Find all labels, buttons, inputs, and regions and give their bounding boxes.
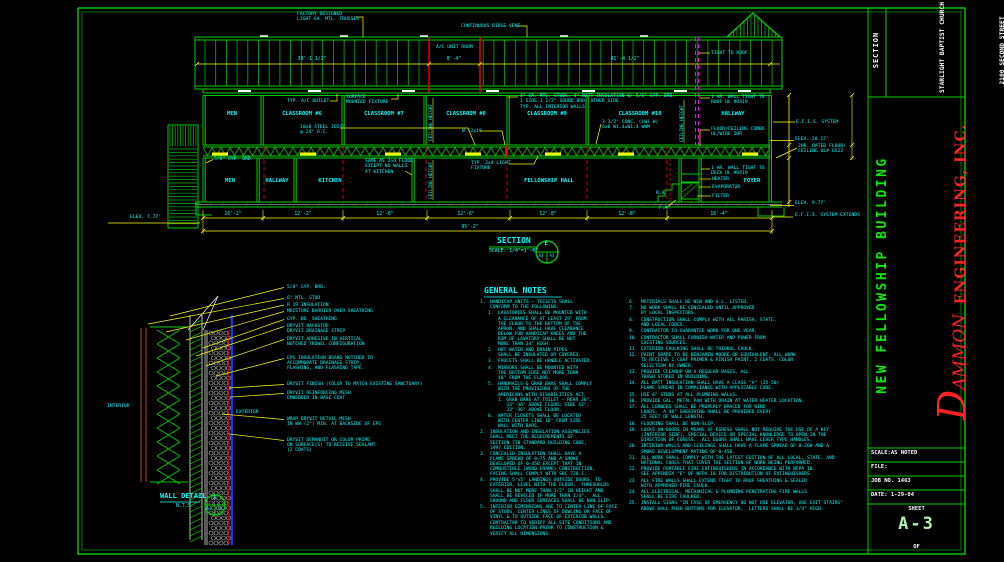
annotation-light-fix: TYP. 2x4 LIGHT FIXTURE bbox=[471, 161, 511, 172]
room-label: CLASSROOM #7 bbox=[364, 111, 404, 117]
dim-overall-label: 95'-2" bbox=[461, 225, 478, 230]
note-text: ALL CORNERS SHALL BE PROPERLY BRACED FOR… bbox=[641, 405, 771, 420]
annotation-ceiling-height: CEILING HEIGHT bbox=[430, 162, 435, 199]
titleblock-sheet-word: SHEET bbox=[868, 506, 965, 512]
titleblock-job: JOB NO. 1463 bbox=[871, 478, 963, 484]
titleblock-firm: DAMMON ENGINEERING, INC. SLIDELL, LOUISI… bbox=[899, 97, 947, 447]
wall-detail-note: DRYVIT BACKSTOP DRYVIT DRAINAGE STRIP bbox=[287, 324, 345, 334]
annotation-filter: FILTER bbox=[712, 194, 729, 199]
note-number: 4. bbox=[488, 366, 494, 371]
dim-label: 8'-4" bbox=[447, 57, 461, 62]
detail-marker-sheet: A3 bbox=[218, 507, 223, 511]
note-number: 5. bbox=[480, 505, 486, 510]
titleblock-of: OF bbox=[868, 544, 965, 550]
room-label: MEN bbox=[225, 178, 235, 184]
annotation-tight-roof: TIGHT TO ROOF bbox=[711, 51, 748, 56]
note-number: 25. bbox=[629, 501, 637, 506]
note-text: NO WORK SHALL BE CONCEALED UNTIL APPROVE… bbox=[641, 306, 754, 316]
note-text: FLOORING SHALL BE NON-SLIP. bbox=[641, 422, 716, 427]
note-number: 3. bbox=[480, 452, 486, 457]
wall-detail-note: MOISTURE BARRIER OVER SHEATHING bbox=[287, 309, 373, 314]
wall-detail-note: EPS INSULATION BOARD NOTCHED TO ACCOMMOD… bbox=[287, 356, 373, 371]
interior-label: INTERIOR bbox=[107, 404, 130, 409]
annotation-ra: R.A. bbox=[656, 191, 667, 196]
wall-detail-scale: N.T.S. bbox=[176, 504, 193, 509]
annotation-ceiling-height: CEILING HEIGHT bbox=[430, 104, 435, 141]
wall-detail-note: WRAP DRYVIT DETAIL MESH IN WW (2") MIN. … bbox=[287, 417, 381, 427]
dim-label: 12'-2" bbox=[294, 212, 311, 217]
note-number: 3. bbox=[488, 359, 494, 364]
room-label: FELLOWSHIP HALL bbox=[524, 178, 574, 184]
note-number: 10. bbox=[629, 336, 637, 341]
titleblock-file: FILE: bbox=[871, 464, 963, 470]
note-number: 7. bbox=[629, 306, 635, 311]
note-text: EXTERIOR CAULKING SHALL BE THIOKOL CAULK… bbox=[641, 347, 754, 352]
note-text: CONCEALED INSULATION SHALL HAVE A FLAME … bbox=[490, 452, 595, 478]
dim-label: 16'-2" bbox=[224, 212, 241, 217]
note-text: CONTRACTOR TO GUARANTEE WORK FOR ONE YEA… bbox=[641, 329, 757, 334]
note-number: 2. bbox=[480, 430, 486, 435]
annotation-evaporator: EVAPORATOR bbox=[712, 185, 740, 190]
annotation-same-as: SAME AS 2nd FLOOR EXCEPT NO WALLS AT KIT… bbox=[365, 159, 413, 175]
wall-detail-note: DRYVIT REINFORCING MESH EMBEDDED IN BASE… bbox=[287, 391, 351, 401]
annotation-surf-fix: SURFACE MOUNTED FIXTURE bbox=[346, 95, 388, 106]
note-text: CONSTRUCTION SHALL COMPLY WITH ALL PARIS… bbox=[641, 318, 777, 328]
wall-detail-note: DRYVIT ADHESIVE IN VERTICAL NOTCHED TROW… bbox=[287, 337, 364, 347]
dim-label: 41'-4 1/2" bbox=[611, 57, 640, 62]
firm-rest: AMMON bbox=[950, 314, 970, 390]
note-text: LAVATORIES SHALL BE MOUNTED WITH A CLEAR… bbox=[498, 311, 587, 347]
annotation-conc: 3 1/2" CONC. (LW) W/ 6x6 W1.4xW1.4 WWM bbox=[602, 120, 658, 131]
note-text: INTERIOR WALLS AND CEILINGS SHALL HAVE A… bbox=[641, 444, 829, 454]
room-label: CLASSROOM #6 bbox=[282, 111, 322, 117]
note-text: MIRRORS SHALL BE MOUNTED WITH THE BOTTOM… bbox=[498, 366, 578, 381]
note-number: 1. bbox=[488, 311, 494, 316]
note-number: 9. bbox=[629, 329, 635, 334]
note-number: 20. bbox=[629, 444, 637, 449]
note-number: 15. bbox=[629, 393, 637, 398]
note-number: 8. bbox=[629, 318, 635, 323]
titleblock-project: STARLIGHT BAPTIST CHURCH 2100 SECOND STR… bbox=[893, 8, 955, 93]
wall-detail-note: DRYVIT DEMANDIT OR COLOR PRIME ON SURFAC… bbox=[287, 438, 376, 453]
note-number: 23. bbox=[629, 479, 637, 484]
room-label: KITCHEN bbox=[318, 178, 341, 184]
titleblock-building-name: NEW FELLOWSHIP BUILDING bbox=[875, 105, 897, 445]
annotation-factory: FACTORY DESIGNED LIGHT GA. MTL. TRUSSES bbox=[297, 12, 359, 23]
project-street: 2100 SECOND STREET bbox=[993, 8, 1004, 93]
section-view-title: SECTION bbox=[497, 237, 531, 246]
room-label: CLASSROOM #10 bbox=[618, 111, 661, 117]
note-text: MATERIALS SHALL BE NEW AND U.L. LISTED. bbox=[641, 300, 749, 305]
annotation-wbeam: W 12x19 bbox=[462, 129, 482, 134]
titleblock-date: DATE: 1-29-04 bbox=[871, 492, 963, 498]
firm-initial: D bbox=[930, 390, 974, 420]
note-text: FAUCETS SHALL BE HANDLE ACTIVATED. bbox=[498, 359, 592, 364]
note-number: 14. bbox=[629, 381, 637, 386]
note-number: 13. bbox=[629, 370, 637, 375]
annotation-joist: 10x8 STEEL JOIST @ 24" O.C. bbox=[300, 125, 345, 136]
dim-label: 12'-8" bbox=[539, 212, 556, 217]
annotation-ceiling-height: CEILING HEIGHT bbox=[681, 105, 686, 142]
annotation-elev-right: ELEV. 9.77' bbox=[795, 201, 826, 206]
firm-suffix: ENGINEERING, INC. bbox=[953, 124, 969, 304]
note-text: ALL FIRE WALLS SHALL EXTEND TIGHT TO ROO… bbox=[641, 479, 807, 489]
room-label: HALLWAY bbox=[265, 178, 288, 184]
note-number: 24. bbox=[629, 490, 637, 495]
general-notes-title: GENERAL NOTES bbox=[484, 287, 547, 296]
note-text: INTERIOR DIMENSIONS ARE TO CENTER LINE O… bbox=[490, 505, 617, 520]
note-text: INSTALL SIGNS "IN CASE OF EMERGENCY DO N… bbox=[641, 501, 843, 511]
annotation-fc-combo: FLOOR/CEILING COMBO UL/WIRE 2HR bbox=[711, 127, 765, 138]
note-text: CONTRACTOR SHALL FURNISH WATER AND POWER… bbox=[641, 336, 765, 346]
note-number: 17. bbox=[629, 405, 637, 410]
annotation-heater: HEATER bbox=[712, 177, 729, 182]
note-number: 2. bbox=[488, 348, 494, 353]
titleblock-scale: SCALE:AS NOTED bbox=[871, 450, 963, 456]
project-name: STARLIGHT BAPTIST CHURCH bbox=[933, 8, 953, 93]
note-text: ALL ELECTRICAL, MECHANICAL & PLUMBING PE… bbox=[641, 490, 807, 500]
note-number: 11. bbox=[629, 347, 637, 352]
note-text: ALL BATT INSULATION SHALL HAVE A CLASS "… bbox=[641, 381, 779, 391]
titleblock-section-label: SECTION bbox=[872, 8, 886, 92]
note-text: PROVIDE PORTABLE FIRE EXTINGUISHERS IN A… bbox=[641, 467, 815, 477]
room-label: CLASSROOM #9 bbox=[527, 111, 567, 117]
room-label: FOYER bbox=[744, 178, 761, 184]
wall-detail-note: 6" MTL. STUD bbox=[287, 296, 320, 301]
annotation-fa: F.A. bbox=[659, 206, 670, 211]
section-marker-sheet: A3 bbox=[539, 254, 544, 258]
titleblock-sheet-number: A-3 bbox=[868, 514, 965, 534]
note-number: 6. bbox=[488, 414, 494, 419]
wall-detail-note: GYP. BD. SHEATHING bbox=[287, 317, 337, 322]
note-number: 5. bbox=[488, 382, 494, 387]
detail-marker-sheet: A3 bbox=[207, 507, 212, 511]
annotation-efis: E.F.I.S. SYSTEM bbox=[796, 120, 838, 125]
note-text: LOCKS ON DOORS IN MEANS OF EGRESS SHALL … bbox=[641, 428, 829, 443]
note-text: USE 6" STUDS AT ALL PLUMBING WALLS. bbox=[641, 393, 738, 398]
note-text: PAINT GRADE TO BE BENJAMIN MOORE OR EQUI… bbox=[641, 353, 796, 368]
dim-label: 12'-8" bbox=[618, 212, 635, 217]
section-view-scale: SCALE: 1/4"=1'-0" bbox=[489, 249, 538, 254]
note-number: 12. bbox=[629, 353, 637, 358]
note-text: PROVIDE 5'x5' LANDINGS OUTSIDE DOORS, TO… bbox=[490, 478, 612, 504]
note-number: 6. bbox=[629, 300, 635, 305]
section-marker-sheet: A3 bbox=[550, 254, 555, 258]
annotation-ridge: CONTINUOUS RIDGE VENT bbox=[461, 24, 520, 29]
note-text: HOT WATER AND DRAIN PIPES SHALL BE INSUL… bbox=[498, 348, 581, 358]
annotation-ac-room: A/C UNIT ROOM bbox=[436, 45, 473, 50]
dim-label: 12'-8" bbox=[376, 212, 393, 217]
detail-marker-number: 2 bbox=[213, 495, 217, 502]
annotation-studs-note: 4" GA. MTL. STUDS, 4" BATT INSULATION W/… bbox=[520, 94, 675, 110]
firm-name-line: DAMMON ENGINEERING, INC. bbox=[937, 97, 970, 447]
annotation-hr-wall-deck: 1 HR. WALL TIGHT TO DECK UL #U419 bbox=[711, 166, 765, 177]
annotation-efis-ext: E.F.I.S. SYSTEM EXTENDS bbox=[795, 213, 860, 218]
room-label: MEN bbox=[227, 111, 237, 117]
exterior-label: EXTERIOR bbox=[236, 410, 259, 415]
annotation-hr-wall-roof: 1 HR. WALL TIGHT TO ROOF UL #U419 bbox=[711, 95, 765, 106]
wall-detail-title: WALL DETAIL bbox=[160, 493, 206, 501]
section-marker-letter: E bbox=[545, 241, 549, 248]
note-text: WATER CLOSETS SHALL BE LOCATED WITH CENT… bbox=[498, 414, 581, 429]
note-number: 18. bbox=[629, 422, 637, 427]
note-text: ALL WORK SHALL COMPLY WITH THE LATEST ED… bbox=[641, 456, 835, 466]
annotation-ac-outlet: TYP. A/C OUTLET bbox=[287, 99, 329, 104]
note-number: 1. bbox=[480, 300, 486, 305]
annotation-rated-fc: 2HR. RATED FLOOR/ CEILING UL# G512 bbox=[798, 144, 846, 155]
note-number: 22. bbox=[629, 467, 637, 472]
note-text: HANDRAILS & GRAB BARS SHALL COMPLY WITH … bbox=[498, 382, 592, 413]
note-text: PROVIDE CLEANUP ON A REGULAR BASIS. ALL … bbox=[641, 370, 749, 380]
room-label: CLASSROOM #8 bbox=[446, 111, 486, 117]
wall-detail-note: 5/8" GYP. BRD. bbox=[287, 285, 326, 290]
note-number: 19. bbox=[629, 428, 637, 433]
note-number: 4. bbox=[480, 478, 486, 483]
dim-label: 12'-6" bbox=[457, 212, 474, 217]
dim-label: 30'-1 1/2" bbox=[298, 57, 327, 62]
annotation-elev-mid: ELEV. 20.17' bbox=[795, 137, 829, 142]
note-text: PROVIDE GAL. METAL PAN WITH DRAIN AT WAT… bbox=[641, 399, 804, 404]
cad-drawing-sheet: SECTION STARLIGHT BAPTIST CHURCH 2100 SE… bbox=[0, 0, 1004, 562]
note-number: 16. bbox=[629, 399, 637, 404]
dim-label: 16'-4" bbox=[710, 212, 727, 217]
note-text: HANDICAP UNITS — TOILETS SHALL CONFORM T… bbox=[490, 300, 573, 310]
room-label: HALLWAY bbox=[721, 111, 744, 117]
note-number: 21. bbox=[629, 456, 637, 461]
wall-detail-note: DRYVIT FINISH (COLOR TO MATCH EXISTING S… bbox=[287, 382, 423, 387]
annotation-gyp-1f: 5/8" GYP. BRD. bbox=[214, 157, 254, 162]
note-text: INSULATION AND INSULATION ASSEMBLIES SHA… bbox=[490, 430, 590, 451]
wall-detail-note: R 19 INSULATION bbox=[287, 303, 329, 308]
annotation-elev-left: ELEV. 7.77' bbox=[130, 215, 161, 220]
note-text: CONTRACTOR TO VERIFY ALL SITE CONDITIONS… bbox=[490, 521, 612, 536]
